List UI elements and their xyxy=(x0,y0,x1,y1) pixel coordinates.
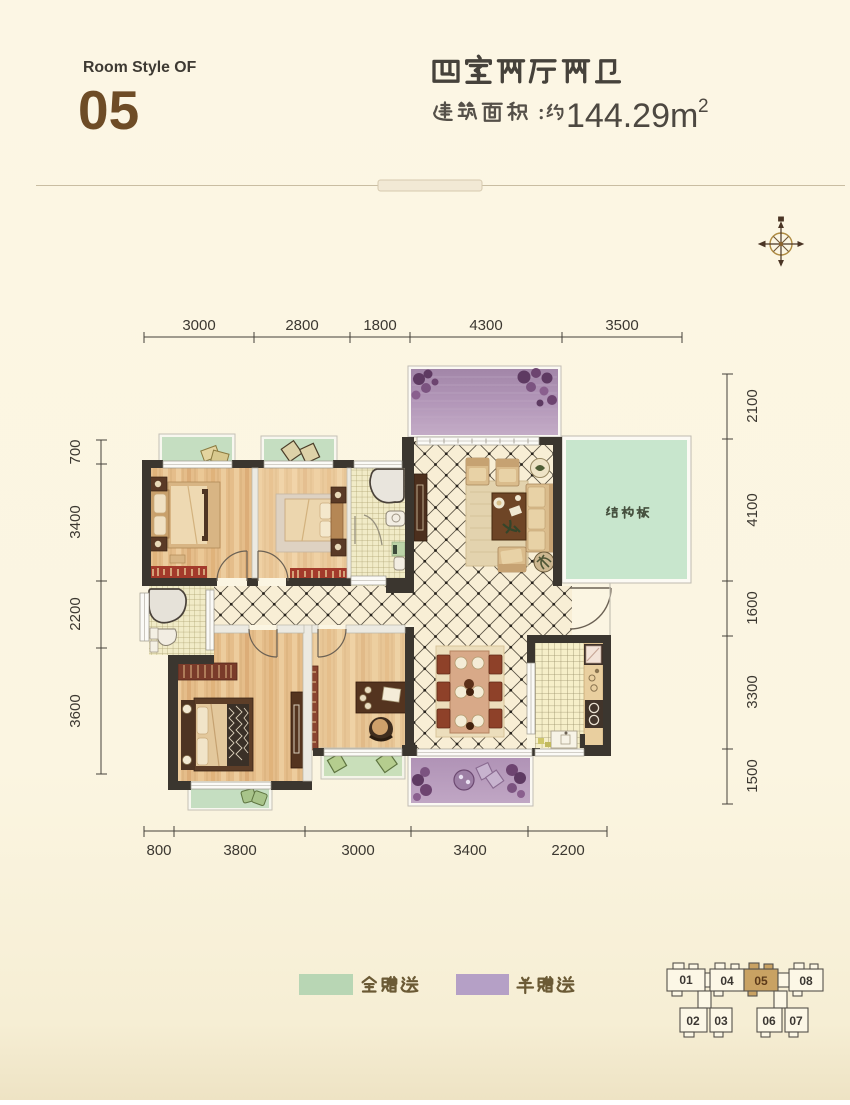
svg-text:05: 05 xyxy=(754,974,768,988)
svg-text:02: 02 xyxy=(686,1014,700,1028)
svg-text:3800: 3800 xyxy=(223,842,256,859)
svg-text:03: 03 xyxy=(714,1014,728,1028)
svg-text:1500: 1500 xyxy=(744,759,761,792)
svg-text:Room Style OF: Room Style OF xyxy=(83,59,197,76)
svg-text:08: 08 xyxy=(799,974,813,988)
svg-text:3600: 3600 xyxy=(67,694,84,727)
svg-text:04: 04 xyxy=(720,974,734,988)
svg-text:2100: 2100 xyxy=(744,389,761,422)
svg-text:2200: 2200 xyxy=(67,597,84,630)
svg-text:4100: 4100 xyxy=(744,493,761,526)
svg-text:3000: 3000 xyxy=(182,317,215,334)
svg-text:1800: 1800 xyxy=(363,317,396,334)
svg-text:2200: 2200 xyxy=(551,842,584,859)
svg-text:01: 01 xyxy=(679,973,693,987)
svg-text:144.29m: 144.29m xyxy=(566,97,698,135)
svg-text:3400: 3400 xyxy=(67,505,84,538)
svg-text:06: 06 xyxy=(762,1014,776,1028)
svg-text:07: 07 xyxy=(789,1014,803,1028)
svg-text:4300: 4300 xyxy=(469,317,502,334)
svg-text:700: 700 xyxy=(67,439,84,464)
svg-text:2800: 2800 xyxy=(285,317,318,334)
svg-text:3500: 3500 xyxy=(605,317,638,334)
svg-text:1600: 1600 xyxy=(744,591,761,624)
svg-text:05: 05 xyxy=(78,79,139,141)
svg-text:2: 2 xyxy=(698,96,709,117)
svg-text:3300: 3300 xyxy=(744,675,761,708)
svg-text:3400: 3400 xyxy=(453,842,486,859)
svg-text:800: 800 xyxy=(146,842,171,859)
svg-text:3000: 3000 xyxy=(341,842,374,859)
